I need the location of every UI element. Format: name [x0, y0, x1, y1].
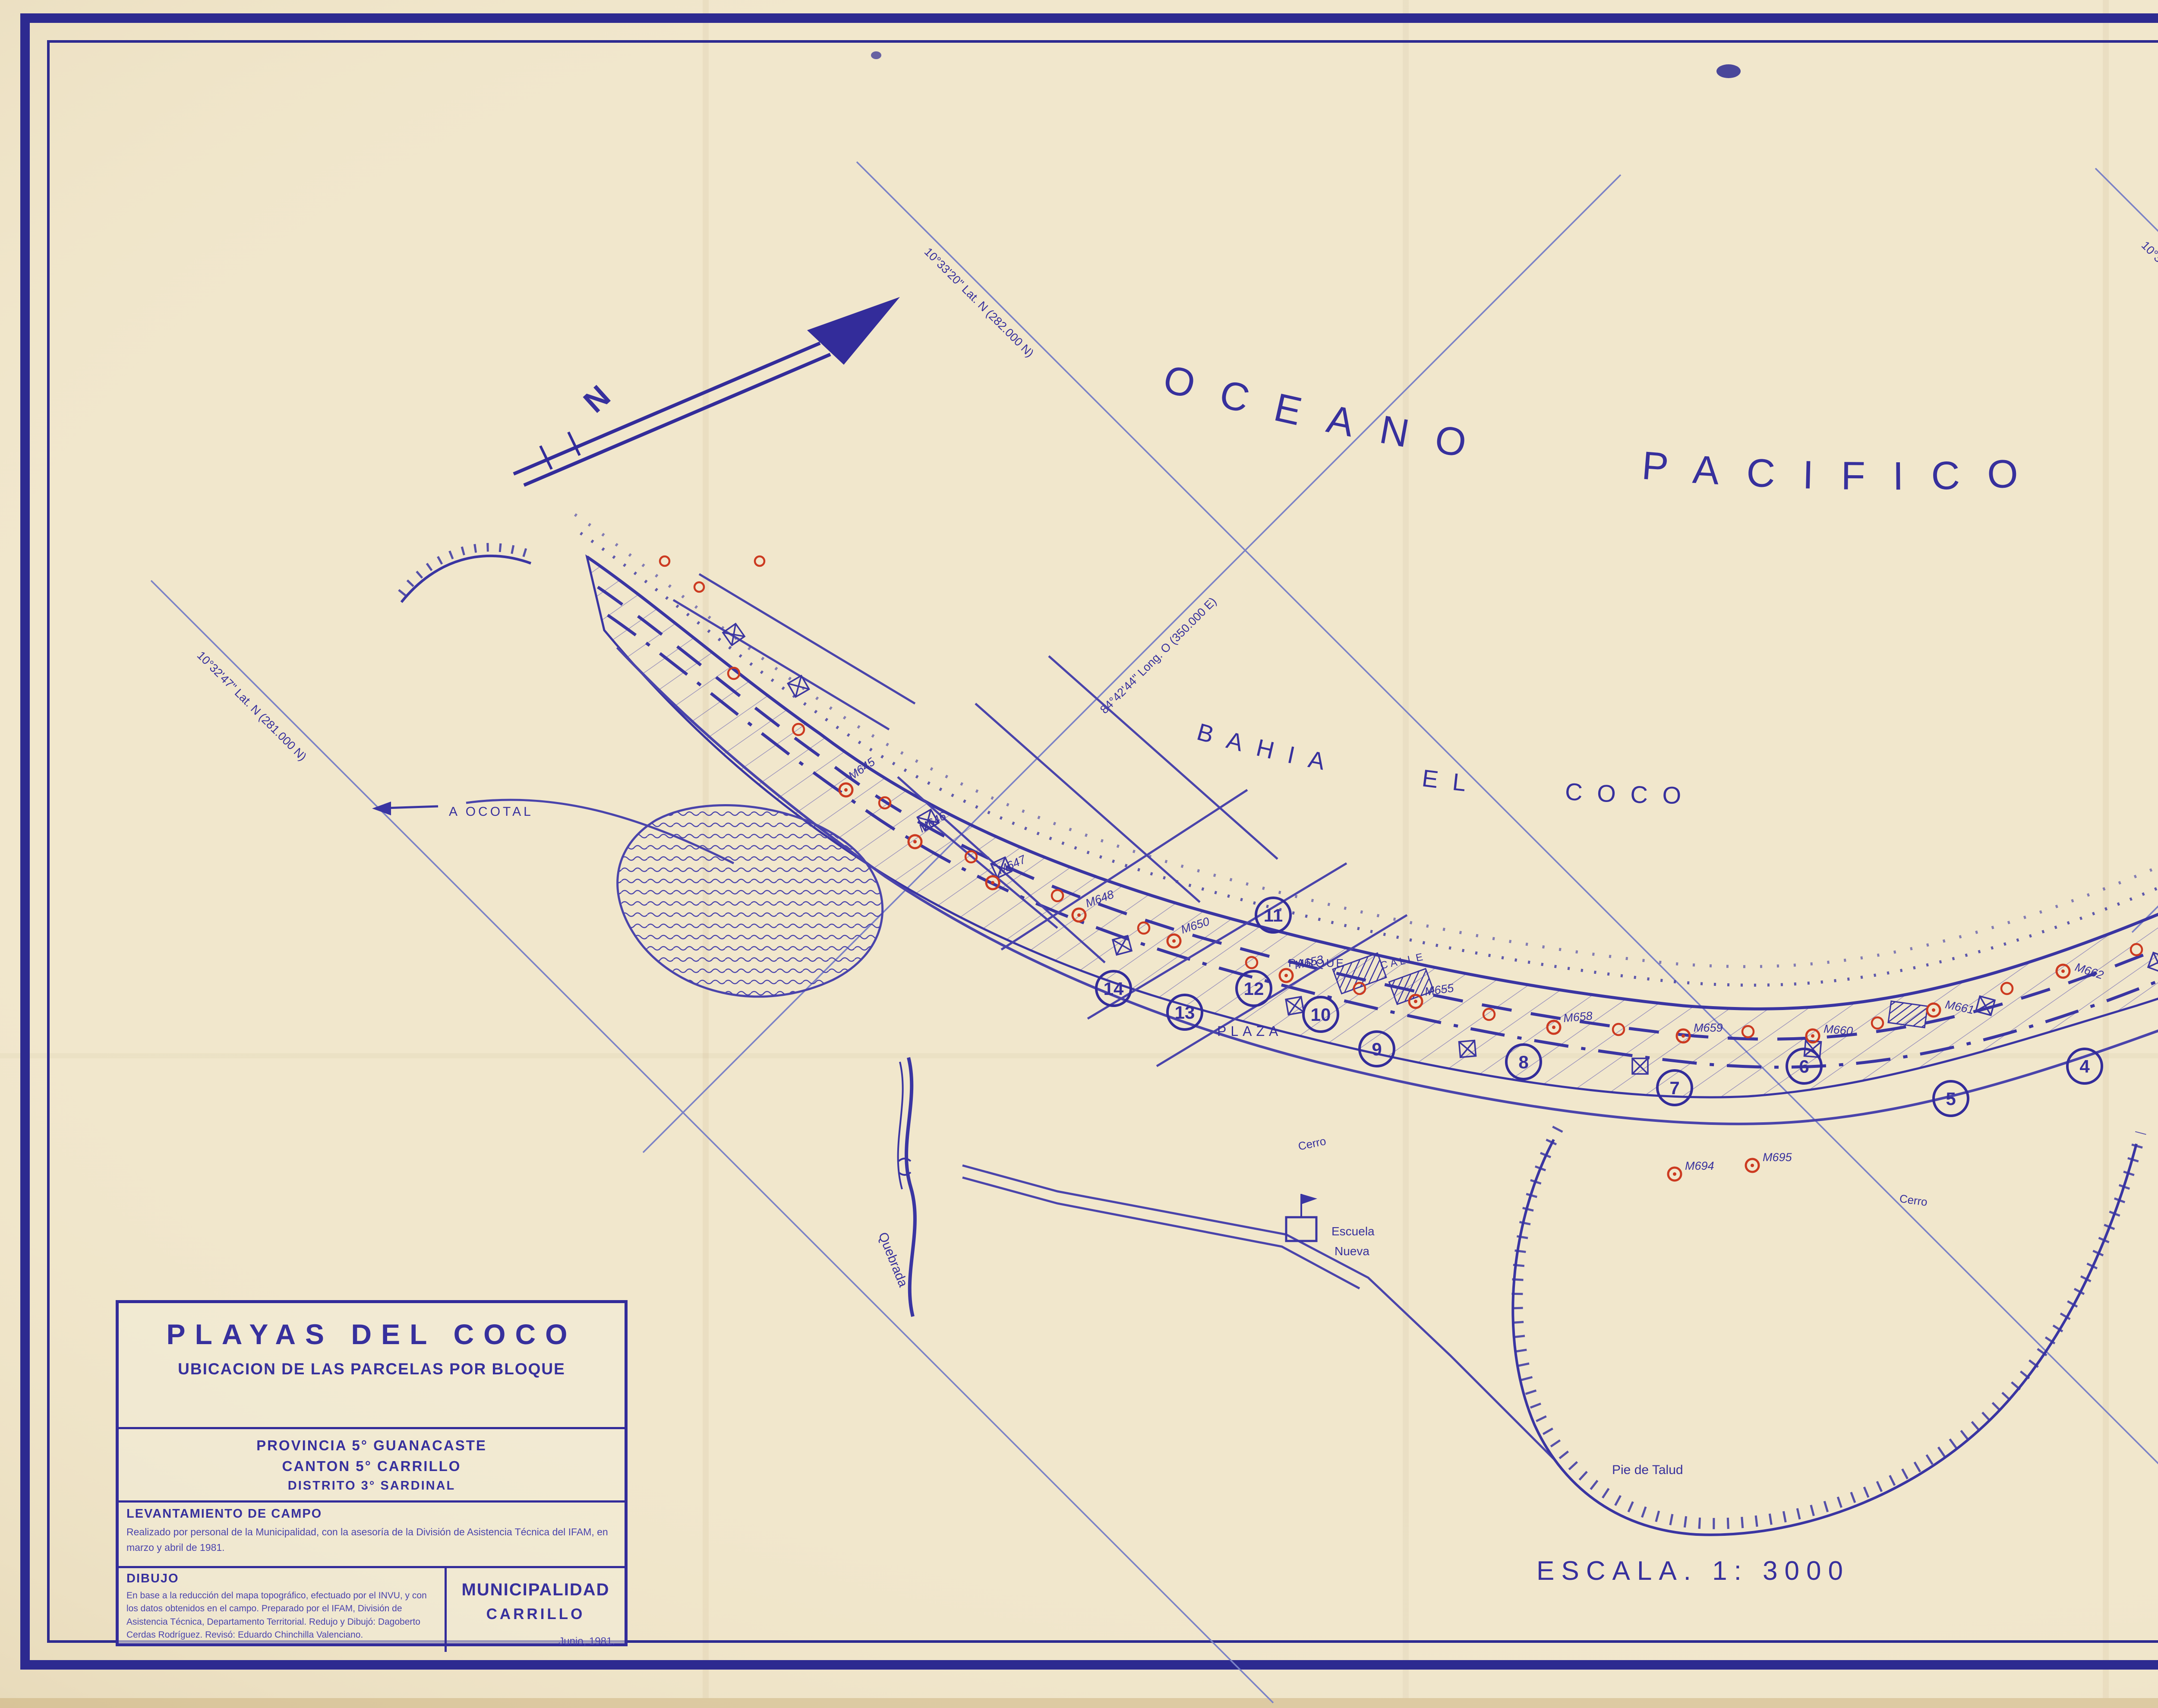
svg-text:M659: M659	[1694, 1021, 1723, 1034]
survey-section: LEVANTAMIENTO DE CAMPO Realizado por per…	[119, 1503, 625, 1568]
drawing-heading: DIBUJO	[126, 1572, 439, 1586]
municipality-canton: CARRILLO	[447, 1606, 625, 1623]
map-sheet: 10°32'47" Lat. N (281.000 N) 10°33'20" L…	[0, 0, 2158, 1708]
block-number: 10	[1311, 1004, 1331, 1025]
map-subtitle: UBICACION DE LAS PARCELAS POR BLOQUE	[119, 1360, 625, 1378]
block-number: 4	[2079, 1056, 2090, 1077]
drawing-cell: DIBUJO En base a la reducción del mapa t…	[119, 1568, 447, 1652]
location-section: PROVINCIA 5° GUANACASTE CANTON 5° CARRIL…	[119, 1429, 625, 1503]
pie-de-talud-label-1: Pie de Talud	[1612, 1463, 1683, 1477]
svg-text:M695: M695	[1763, 1151, 1792, 1164]
block-number: 8	[1518, 1052, 1528, 1072]
escuela-label-2: Nueva	[1335, 1244, 1369, 1258]
block-number: 14	[1104, 979, 1124, 999]
escuela-label-1: Escuela	[1331, 1225, 1375, 1238]
map-date: Junio, 1981.	[558, 1635, 615, 1648]
distrito-line: DISTRITO 3° SARDINAL	[119, 1477, 625, 1495]
map-title: PLAYAS DEL COCO	[119, 1318, 625, 1351]
scale-label: ESCALA. 1: 3000	[1536, 1556, 1850, 1586]
block-number: 7	[1669, 1078, 1679, 1098]
survey-heading: LEVANTAMIENTO DE CAMPO	[126, 1507, 617, 1521]
survey-text: Realizado por personal de la Municipalid…	[126, 1525, 617, 1555]
block-number: 12	[1244, 979, 1264, 999]
block-number: 9	[1372, 1039, 1382, 1059]
ocotal-road-label: A OCOTAL	[449, 805, 533, 819]
title-section: PLAYAS DEL COCO UBICACION DE LAS PARCELA…	[119, 1318, 625, 1429]
block-number: 6	[1799, 1056, 1809, 1077]
plaza-label: PLAZA	[1217, 1023, 1282, 1039]
ink-blot-small	[871, 51, 881, 59]
municipality-cell: MUNICIPALIDAD CARRILLO Junio, 1981.	[447, 1568, 625, 1652]
ink-blot-top	[1716, 64, 1741, 78]
canton-line: CANTON 5° CARRILLO	[119, 1456, 625, 1477]
block-number: 5	[1946, 1089, 1956, 1109]
block-number: 13	[1175, 1002, 1195, 1023]
block-number: 11	[1264, 905, 1283, 925]
municipality-name: MUNICIPALIDAD	[447, 1580, 625, 1600]
drawing-section: DIBUJO En base a la reducción del mapa t…	[119, 1568, 625, 1652]
svg-text:M660: M660	[1823, 1022, 1853, 1038]
drawing-text: En base a la reducción del mapa topográf…	[126, 1589, 439, 1642]
title-block: PLAYAS DEL COCO UBICACION DE LAS PARCELA…	[116, 1300, 628, 1646]
provincia-line: PROVINCIA 5° GUANACASTE	[119, 1435, 625, 1456]
svg-text:M658: M658	[1563, 1009, 1593, 1025]
svg-text:M694: M694	[1685, 1159, 1714, 1172]
